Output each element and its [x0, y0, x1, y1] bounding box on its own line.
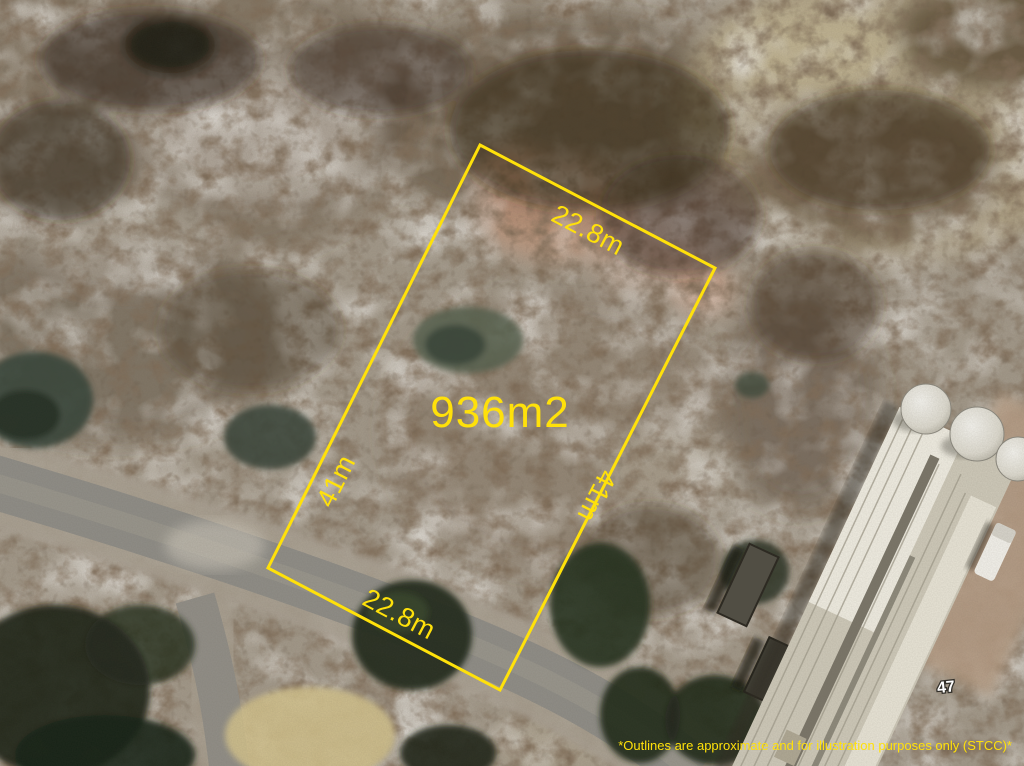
- area-label: 936m2: [430, 388, 570, 437]
- grain-texture: [0, 0, 1024, 766]
- aerial-parcel-photo: 47 22.8m 22.8m 41m 41m 936m2 *Outlines a…: [0, 0, 1024, 766]
- satellite-canvas: 47 22.8m 22.8m 41m 41m 936m2 *Outlines a…: [0, 0, 1024, 766]
- house-number-label: 47: [936, 678, 956, 697]
- disclaimer-text: *Outlines are approximate and for illust…: [618, 738, 1012, 753]
